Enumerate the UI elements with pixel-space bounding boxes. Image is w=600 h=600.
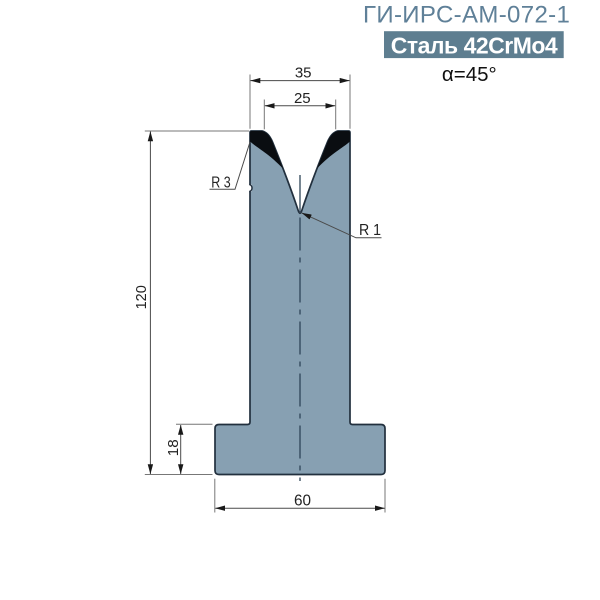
svg-text:18: 18 bbox=[165, 439, 182, 456]
svg-text:R 1: R 1 bbox=[359, 222, 381, 239]
svg-text:25: 25 bbox=[294, 90, 311, 107]
svg-text:α=45°: α=45° bbox=[442, 63, 497, 86]
svg-text:120: 120 bbox=[134, 285, 150, 309]
svg-text:60: 60 bbox=[294, 493, 311, 510]
svg-text:ГИ-ИРС-АМ-072-1: ГИ-ИРС-АМ-072-1 bbox=[363, 2, 570, 29]
svg-text:35: 35 bbox=[295, 65, 312, 82]
svg-text:Сталь 42CrMo4: Сталь 42CrMo4 bbox=[391, 33, 558, 59]
